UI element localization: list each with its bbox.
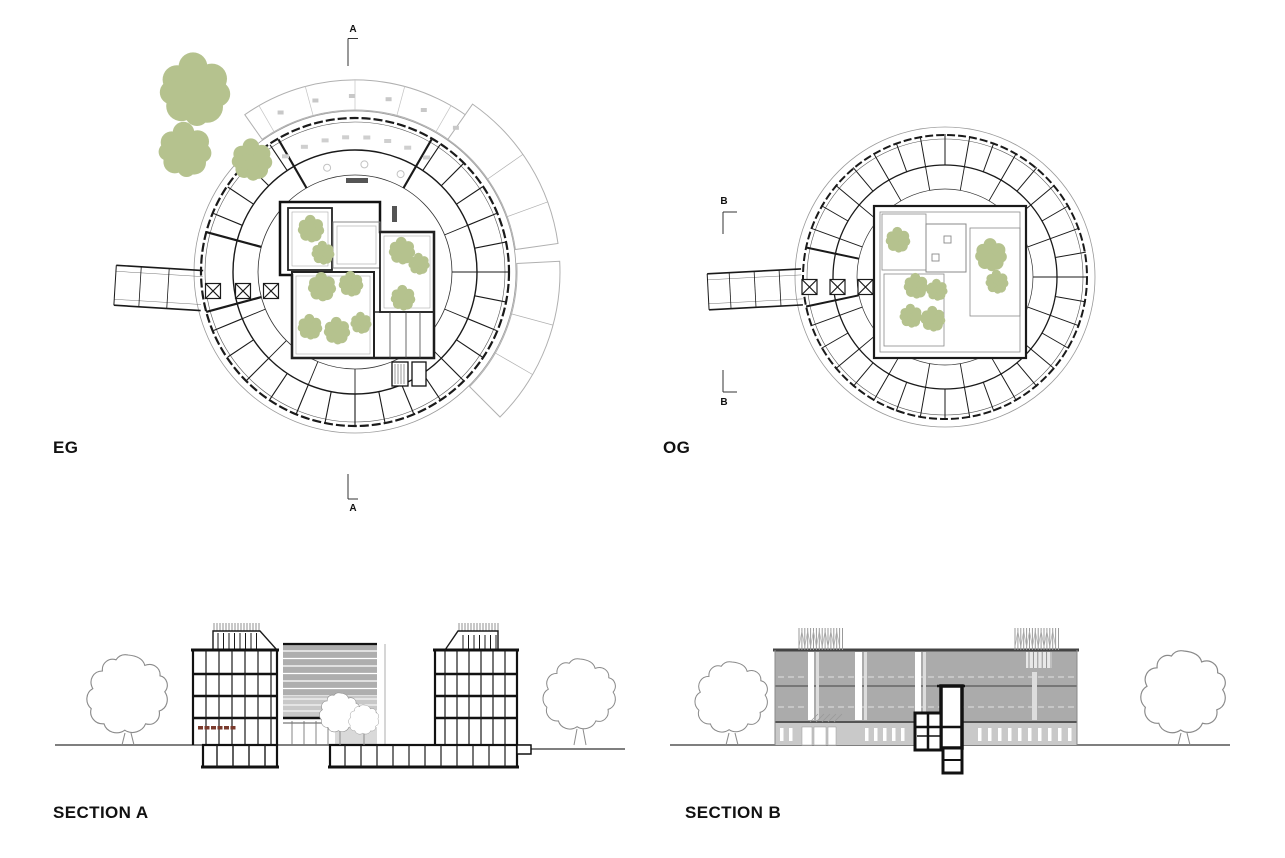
tree-icon	[160, 52, 230, 126]
tree-outline-icon	[1141, 651, 1225, 733]
floor-plan-og: B B	[690, 100, 1210, 460]
section-label-a: SECTION A	[53, 803, 149, 823]
section-marker-b-bottom: B	[720, 370, 737, 408]
svg-text:A: A	[349, 24, 356, 35]
section-b-drawing	[660, 595, 1240, 785]
section-marker-b-top: B	[720, 196, 737, 234]
reception-desk	[346, 178, 368, 183]
roof-screen-left	[799, 628, 843, 650]
svg-text:B: B	[720, 196, 727, 207]
counter	[392, 206, 397, 222]
left-wing	[191, 623, 279, 767]
section-label-b: SECTION B	[685, 803, 781, 823]
tree-outline-icon	[543, 659, 615, 729]
plan-label-og: OG	[663, 438, 690, 458]
roof-screen-right	[1015, 628, 1059, 650]
roof-planting-fringe	[459, 623, 498, 631]
tree-icon	[159, 122, 212, 177]
basement	[203, 745, 277, 767]
roof-planting-fringe	[214, 623, 259, 631]
architecture-sheet: { "sheet": { "plans": [ { "id": "eg", "l…	[0, 0, 1285, 858]
shaft-x-boxes	[206, 284, 279, 299]
plan-label-eg: EG	[53, 438, 78, 458]
tree-outline-icon	[87, 655, 167, 733]
red-spandrel-band	[198, 726, 236, 730]
svg-text:A: A	[349, 503, 356, 514]
svg-text:B: B	[720, 397, 727, 408]
floor-plan-eg: A A	[40, 10, 650, 530]
tree-outline-icon	[695, 662, 767, 732]
skylight	[932, 254, 939, 261]
section-marker-a-top: A	[348, 24, 358, 66]
skylight	[944, 236, 951, 243]
section-marker-a-bottom: A	[348, 474, 358, 514]
section-a-drawing	[40, 595, 640, 785]
shaft-x-boxes	[802, 280, 873, 295]
